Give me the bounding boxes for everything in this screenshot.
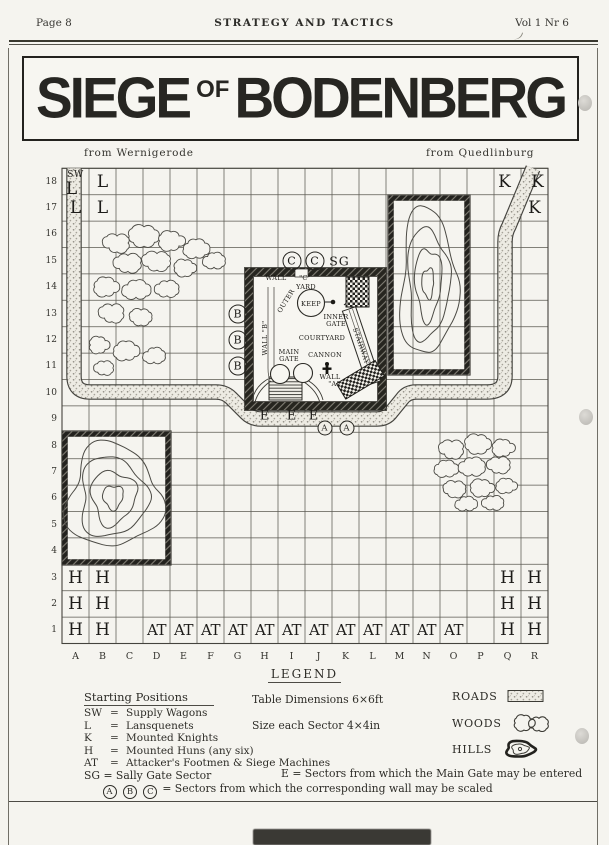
- starting-position-h: H=Mounted Huns (any six): [84, 745, 330, 758]
- starting-position-sw: SW=Supply Wagons: [84, 707, 330, 720]
- roads-label: ROADS: [452, 690, 498, 703]
- hills-label: HILLS: [452, 743, 492, 756]
- wall-scaling-text: = Sectors from which the corresponding w…: [162, 782, 492, 795]
- circled-b-key: B: [123, 785, 137, 799]
- sp-key: L: [84, 720, 110, 733]
- sp-label: Lansquenets: [126, 720, 194, 733]
- sp-equals: =: [110, 707, 126, 720]
- sally-gate-note: SG = Sally Gate Sector: [84, 769, 211, 782]
- sp-label: Mounted Knights: [126, 732, 218, 745]
- starting-positions-title: Starting Positions: [84, 690, 214, 706]
- hills-swatch-icon: [501, 738, 541, 760]
- sp-equals: =: [110, 745, 126, 758]
- wall-scaling-note: A B C = Sectors from which the correspon…: [101, 782, 493, 799]
- binder-hole: [575, 728, 589, 744]
- main-gate-entry-note: E = Sectors from which the Main Gate may…: [281, 767, 582, 780]
- sp-key: SW: [84, 707, 110, 720]
- binder-hole: [579, 409, 593, 425]
- sector-size-note: Size each Sector 4×4in: [252, 719, 380, 732]
- sp-label: Mounted Huns (any six): [126, 745, 254, 758]
- woods-label: WOODS: [452, 717, 502, 730]
- sp-key: H: [84, 745, 110, 758]
- scan-artifact-bar: [253, 829, 431, 845]
- legend-hills: HILLS: [452, 738, 541, 760]
- sp-key: K: [84, 732, 110, 745]
- legend-bottom-rule: [9, 801, 597, 802]
- binder-hole: [578, 95, 592, 111]
- starting-position-k: K=Mounted Knights: [84, 732, 330, 745]
- circled-a-key: A: [103, 785, 117, 799]
- legend-title: LEGEND: [0, 667, 609, 681]
- legend-woods: WOODS: [452, 714, 551, 732]
- sp-label: Supply Wagons: [126, 707, 207, 720]
- sp-equals: =: [110, 720, 126, 733]
- roads-swatch-icon: [507, 689, 545, 703]
- table-dimensions-note: Table Dimensions 6×6ft: [252, 693, 383, 706]
- circled-c-key: C: [143, 785, 157, 799]
- woods-swatch-icon: [511, 714, 551, 732]
- legend-roads: ROADS: [452, 689, 545, 703]
- starting-positions-list: SW=Supply WagonsL=LansquenetsK=Mounted K…: [84, 707, 330, 770]
- sp-equals: =: [110, 732, 126, 745]
